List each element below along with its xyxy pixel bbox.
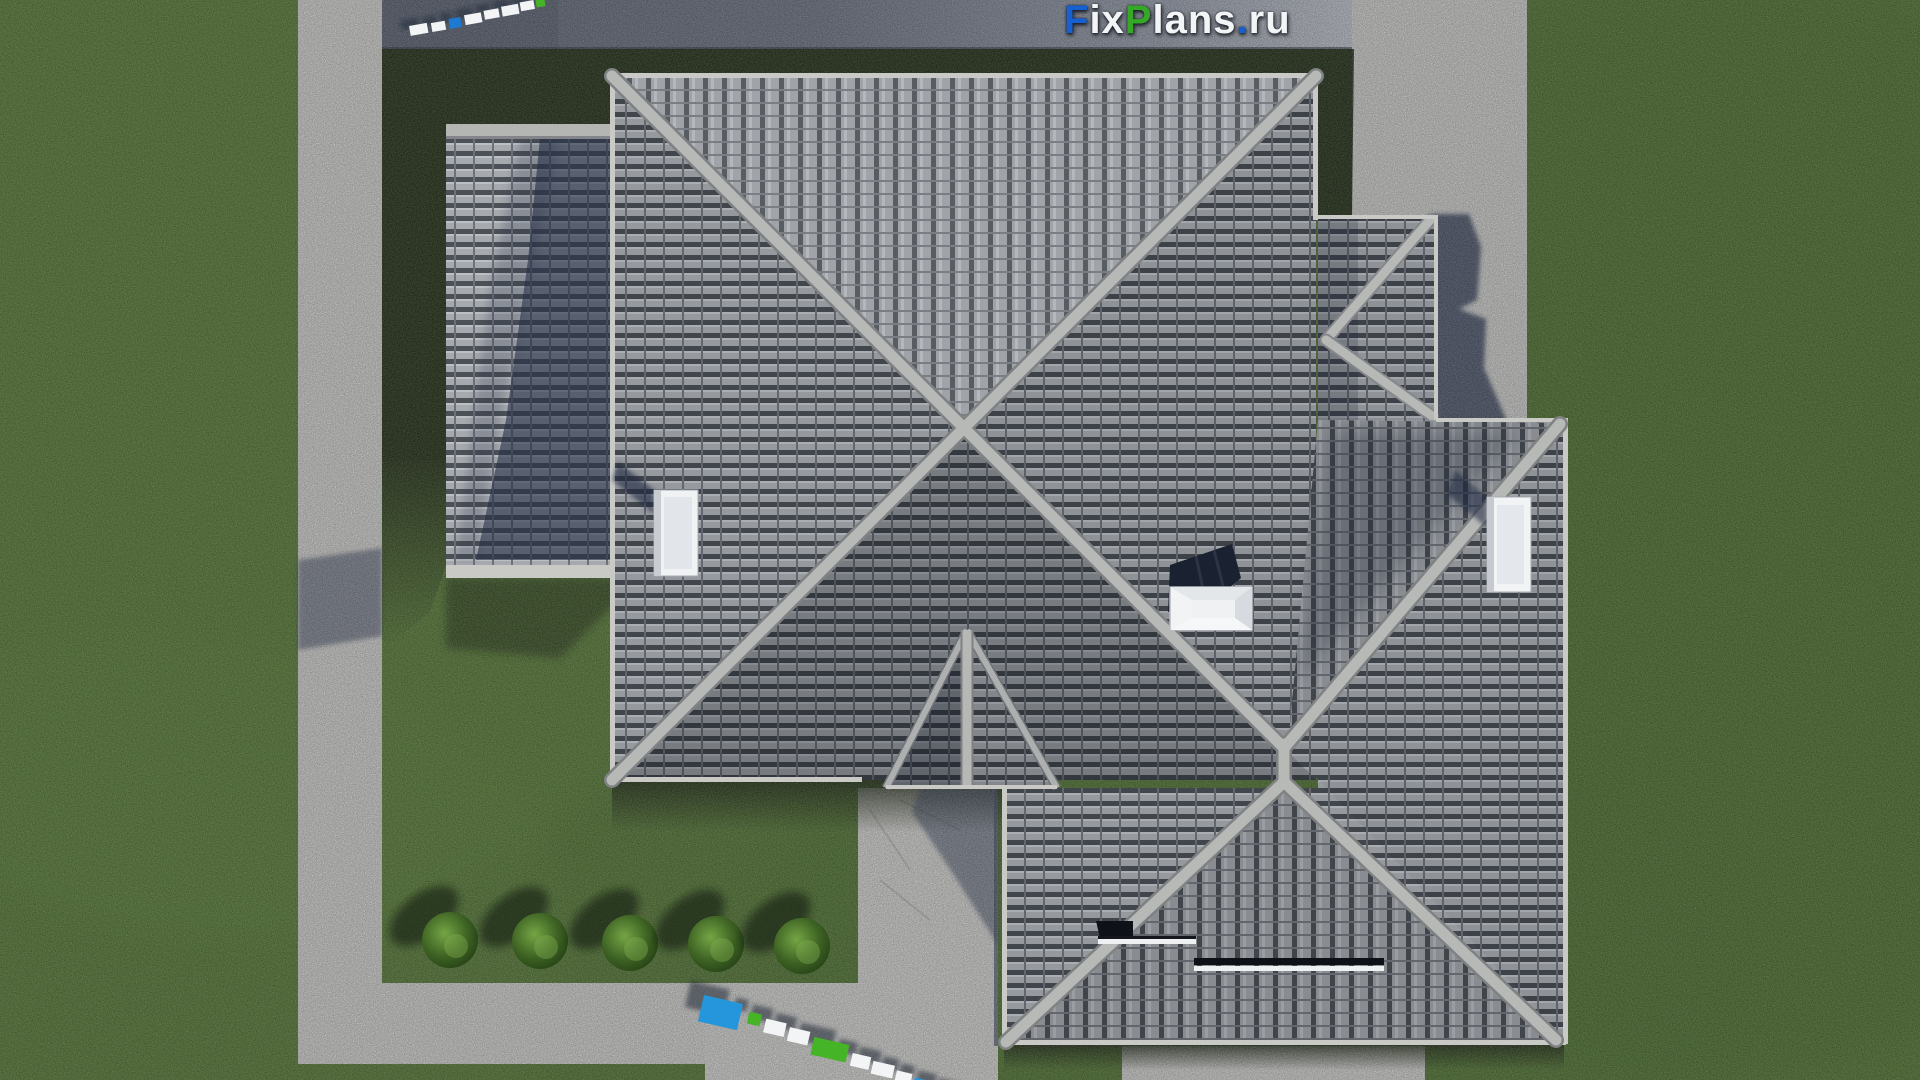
- bush-highlight: [624, 937, 648, 961]
- logo-block: [448, 17, 462, 29]
- site-plan-render: [0, 0, 1920, 1080]
- white-chimney-east: [1487, 497, 1531, 592]
- watermark-letter: F: [1064, 0, 1089, 43]
- main-north-fascia: [612, 73, 1316, 78]
- watermark-letter: P: [1125, 0, 1153, 43]
- bush-highlight: [710, 938, 734, 962]
- watermark-letter: ix: [1089, 0, 1124, 43]
- garage-roof: [446, 124, 618, 578]
- watermark-letter: ru: [1249, 0, 1291, 43]
- bush-highlight: [444, 934, 468, 958]
- main-west-fascia: [610, 76, 615, 780]
- white-chimney-west: [654, 490, 698, 576]
- east-wing-east-fascia: [1563, 420, 1568, 1044]
- render-canvas: FixPlans.ru: [0, 0, 1920, 1080]
- skylight-pyramid: [1170, 587, 1252, 630]
- bush-highlight: [534, 935, 558, 959]
- garage-eave-fascia: [446, 565, 618, 578]
- upper-east-wing-roof: [1318, 215, 1438, 420]
- roof-vent-strip-lower: [1194, 958, 1384, 971]
- watermark-letter: lans: [1152, 0, 1236, 43]
- watermark-letter: .: [1237, 0, 1249, 43]
- fixplans-watermark: FixPlans.ru: [1064, 0, 1291, 43]
- bush-highlight: [796, 940, 820, 964]
- garage-ridge-cap: [446, 124, 618, 138]
- east-wing-south-fascia: [1004, 1040, 1566, 1045]
